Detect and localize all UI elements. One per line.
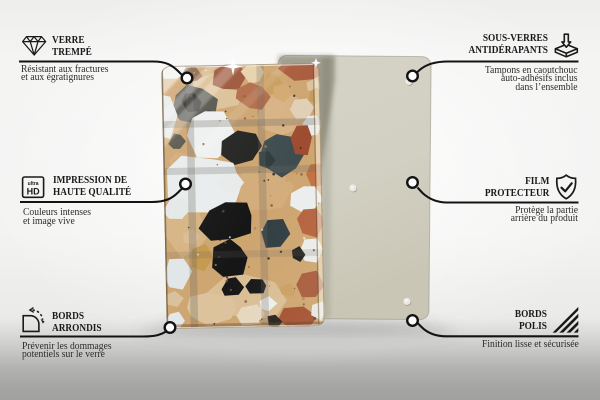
svg-text:HD: HD [27, 186, 40, 196]
